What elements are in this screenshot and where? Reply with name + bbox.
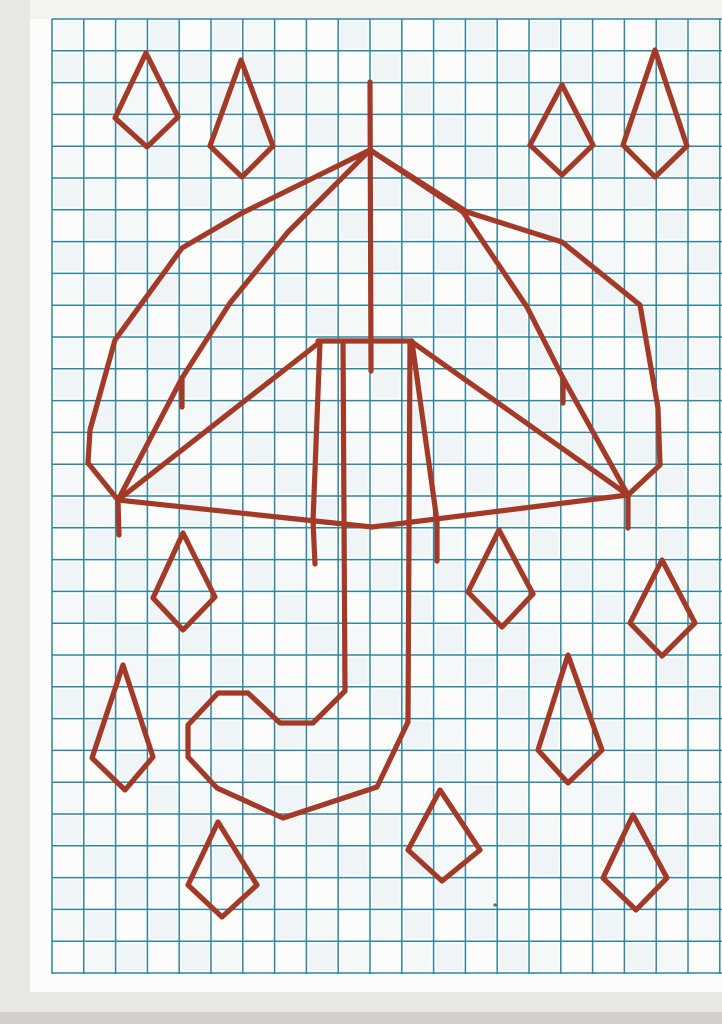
cell-tint [55,689,82,716]
cell-tint [532,181,559,208]
cell-tint [182,308,209,335]
cell-tint [309,276,336,303]
cell-tint [500,944,527,971]
cell-tint [277,880,304,907]
cell-tint [436,753,463,780]
cell-tint [118,753,145,780]
cell-tint [500,689,527,716]
cell-tint [627,944,654,971]
cell-tint [182,499,209,526]
cell-tint [277,244,304,271]
cell-tint [691,467,718,494]
cell-tint [595,817,622,844]
cell-tint [595,912,622,939]
cell-tint [277,467,304,494]
cell-tint [500,467,527,494]
cell-tint [214,753,241,780]
cell-tint [595,403,622,430]
cell-tint [214,22,241,49]
cell-tint [627,403,654,430]
cell-tint [245,340,272,367]
cell-tint [118,562,145,589]
cell-tint [532,848,559,875]
cell-tint [468,53,495,80]
cell-tint [436,435,463,462]
cell-tint [277,276,304,303]
scan-speck [493,903,496,906]
left-scan-edge [0,0,30,1024]
cell-tint [341,880,368,907]
bottom-shadow [0,992,722,1012]
top-margin [0,0,722,19]
cell-tint [55,244,82,271]
cell-tint [500,85,527,112]
cell-tint [182,85,209,112]
cell-tint [468,117,495,144]
cell-tint [182,785,209,812]
cell-tint [309,848,336,875]
cell-tint [309,403,336,430]
cell-tint [627,848,654,875]
cell-tint [277,149,304,176]
cell-tint [118,626,145,653]
cell-tint [691,499,718,526]
cell-tint [563,562,590,589]
cell-tint [341,212,368,239]
scanned-page [0,0,722,1024]
cell-tint [659,785,686,812]
cell-tint [532,626,559,653]
cell-tint [468,880,495,907]
cell-tint [277,817,304,844]
cell-tint [468,22,495,49]
cell-tint [691,658,718,685]
cell-tint [627,530,654,557]
cell-tint [404,912,431,939]
cell-tint [404,308,431,335]
cell-tint [500,53,527,80]
cell-tint [118,848,145,875]
cell-tint [341,22,368,49]
cell-tint [214,721,241,748]
cell-tint [86,276,113,303]
cell-tint [118,944,145,971]
cell-tint [373,817,400,844]
cell-tint [436,530,463,557]
cell-tint [86,912,113,939]
cell-tint [436,848,463,875]
cell-tint [150,912,177,939]
cell-tint [595,689,622,716]
cell-tint [627,212,654,239]
cell-tint [436,562,463,589]
cell-tint [373,689,400,716]
cell-tint [309,626,336,653]
cell-tint [341,244,368,271]
cell-tint [436,244,463,271]
cell-tint [627,435,654,462]
cell-tint [595,785,622,812]
cell-tint [627,912,654,939]
cell-tint [659,22,686,49]
cell-tint [691,181,718,208]
cell-tint [214,530,241,557]
cell-tint [627,499,654,526]
cell-tint [55,499,82,526]
cell-tint [373,499,400,526]
cell-tint [182,467,209,494]
cell-tint [627,181,654,208]
cell-tint [532,817,559,844]
scan-specks [493,903,496,906]
cell-tint [309,817,336,844]
cell-tint [373,53,400,80]
cell-tint [436,117,463,144]
cell-tint [691,562,718,589]
cell-tint [55,371,82,398]
cell-tint [659,753,686,780]
cell-tint [691,817,718,844]
cell-tint [55,880,82,907]
cell-tint [55,817,82,844]
cell-tint [245,562,272,589]
cell-tint [55,562,82,589]
cell-tint [404,53,431,80]
cell-tint [309,944,336,971]
cell-tint [118,22,145,49]
cell-tint [373,912,400,939]
cell-tint [404,85,431,112]
cell-tint [468,149,495,176]
cell-tint [245,22,272,49]
cell-tint [309,212,336,239]
cell-tint [404,944,431,971]
cell-tint [86,944,113,971]
cell-tint [55,22,82,49]
cell-tint [118,340,145,367]
cell-tint [468,658,495,685]
cell-tint [563,212,590,239]
cell-tint [309,912,336,939]
cell-tint [309,117,336,144]
cell-tint [245,753,272,780]
cell-tint [500,149,527,176]
cell-tint [86,848,113,875]
cell-tint [436,22,463,49]
cell-tint [373,467,400,494]
cell-tint [55,912,82,939]
cell-tint [563,530,590,557]
cell-tint [277,562,304,589]
edge-fringe-left [118,500,119,535]
cell-tint [118,403,145,430]
cell-tint [595,85,622,112]
cell-tint [436,626,463,653]
cell-tint [500,626,527,653]
cell-tint [659,340,686,367]
cell-tint [532,403,559,430]
cell-tint [86,530,113,557]
cell-tint [468,340,495,367]
cell-tint [659,530,686,557]
cell-tint [691,689,718,716]
cell-tint [468,276,495,303]
cell-tint [182,403,209,430]
cell-tint [277,53,304,80]
cell-tint [659,244,686,271]
cell-tint [55,467,82,494]
cell-tint [277,85,304,112]
cell-tint [86,817,113,844]
cell-tint [55,276,82,303]
cell-tint [659,467,686,494]
cell-tint [373,244,400,271]
grid-drawing-svg [0,0,722,1024]
cell-tint [691,880,718,907]
cell-tint [86,499,113,526]
spoke-fringe-left [313,521,315,564]
cell-tint [214,340,241,367]
cell-tint [691,53,718,80]
cell-tint [595,562,622,589]
cell-tint [691,244,718,271]
cell-tint [341,944,368,971]
cell-tint [468,435,495,462]
cell-tint [55,53,82,80]
cell-tint [627,753,654,780]
cell-tint [659,435,686,462]
cell-tint [532,944,559,971]
cell-tint [182,181,209,208]
cell-tint [309,181,336,208]
cell-tint [309,85,336,112]
cell-tint [55,149,82,176]
cell-tint [309,594,336,621]
cell-tint [500,912,527,939]
cell-tint [595,149,622,176]
cell-tint [150,149,177,176]
cell-tint [563,340,590,367]
cell-tint [691,22,718,49]
cell-tint [182,912,209,939]
cell-tint [627,626,654,653]
cell-tint [86,181,113,208]
cell-tint [532,530,559,557]
cell-tint [404,276,431,303]
cell-tint [595,371,622,398]
cell-tint [150,658,177,685]
cell-tint [436,721,463,748]
cell-tint [500,721,527,748]
cell-tint [214,181,241,208]
cell-tint [691,785,718,812]
cell-tint [150,880,177,907]
cell-tint [150,22,177,49]
cell-tint [627,721,654,748]
cell-tint [532,658,559,685]
cell-tint [500,817,527,844]
cell-tint [659,308,686,335]
cell-tint [436,212,463,239]
cell-tint [691,340,718,367]
cell-tint [595,181,622,208]
cell-tint [341,117,368,144]
cell-tint [86,85,113,112]
cell-tint [86,594,113,621]
cell-tint [468,785,495,812]
cell-tint [563,848,590,875]
cell-tint [182,149,209,176]
cell-tint [373,594,400,621]
cell-tint [86,626,113,653]
cell-tint [595,53,622,80]
cell-tint [468,689,495,716]
cell-tint [277,785,304,812]
cell-tint [118,212,145,239]
cell-tint [373,880,400,907]
cell-tint [659,212,686,239]
cell-tint [563,467,590,494]
cell-tint [563,22,590,49]
cell-tint [468,753,495,780]
cell-tint [468,467,495,494]
cell-tint [563,880,590,907]
cell-tint [436,308,463,335]
cell-tint [150,340,177,367]
cell-tint [277,594,304,621]
cell-tint [86,53,113,80]
cell-tint [659,944,686,971]
cell-tint [214,658,241,685]
cell-tint [277,912,304,939]
cell-tint [436,403,463,430]
cell-tint [182,689,209,716]
cell-tint [595,499,622,526]
cell-tint [500,308,527,335]
cell-tint [436,85,463,112]
cell-tint [691,276,718,303]
umbrella-pole [370,82,371,371]
cell-tint [309,753,336,780]
cell-tint [500,371,527,398]
cell-tint [245,530,272,557]
cell-tint [404,212,431,239]
handle-shaft-right [408,341,410,722]
cell-tint [436,944,463,971]
cell-tint [532,22,559,49]
cell-tint [341,848,368,875]
cell-tint [182,53,209,80]
cell-tint [150,689,177,716]
cell-tint [150,785,177,812]
cell-tint [86,212,113,239]
cell-tint [245,212,272,239]
handle-shaft-left [343,341,345,691]
cell-tint [595,594,622,621]
cell-tint [468,912,495,939]
cell-tint [500,181,527,208]
cell-tint [373,276,400,303]
cell-tint [373,658,400,685]
cell-tint [563,53,590,80]
cell-tint [373,181,400,208]
cell-tint [214,626,241,653]
cell-tint [691,371,718,398]
cell-tint [691,149,718,176]
cell-tint [55,594,82,621]
cell-tint [55,785,82,812]
cell-tint [436,880,463,907]
cell-tint [563,785,590,812]
cell-tint [86,308,113,335]
cell-tint [436,658,463,685]
cell-tint [214,944,241,971]
cell-tint [214,435,241,462]
cell-tint [55,181,82,208]
cell-tint [118,244,145,271]
cell-tint [182,944,209,971]
cell-tint [309,308,336,335]
cell-tint [341,308,368,335]
cell-tint [595,244,622,271]
cell-tint [341,753,368,780]
cell-tint [500,785,527,812]
cell-tint [691,912,718,939]
cell-tint [118,880,145,907]
cell-tint [245,658,272,685]
cell-tint [182,817,209,844]
cell-tint [373,562,400,589]
cell-tint [245,435,272,462]
bottom-edge-band [0,1012,722,1024]
cell-tint [373,371,400,398]
cell-tint [277,403,304,430]
cell-tint [182,276,209,303]
cell-tint [373,22,400,49]
cell-tint [659,658,686,685]
cell-tint [55,658,82,685]
cell-tint [118,530,145,557]
cell-tint [55,340,82,367]
cell-tint [277,689,304,716]
cell-tint [245,467,272,494]
